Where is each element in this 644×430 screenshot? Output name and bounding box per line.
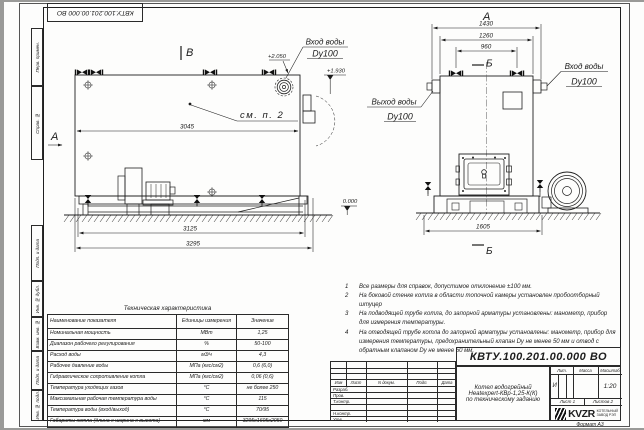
spec-name: Расход воды: [48, 351, 177, 362]
spec-col-units: Единицы измерения: [177, 315, 237, 329]
dim-960: 960: [481, 44, 492, 51]
front-inlet-dn: Dy100: [571, 77, 597, 87]
spec-name: Диапазон рабочего регулирования: [48, 340, 177, 351]
sheet-number: Лист 1: [551, 398, 584, 405]
inspection-plate: [503, 92, 522, 109]
product-description: Котел водогрейный Heatexpert-КВр-1,25-К(…: [456, 366, 550, 421]
lit-label: Лит.: [551, 367, 573, 374]
drain-valve-icon: [425, 182, 431, 194]
section-label-a-side: А: [50, 131, 58, 143]
note-text: На боковой стенке котла в области топочн…: [359, 292, 617, 310]
dim-1260: 1260: [479, 33, 494, 40]
rev-col-data: Дата: [437, 379, 457, 386]
spec-units: °С: [177, 406, 237, 417]
spec-value: 115: [237, 395, 289, 406]
spec-name: Температура воды (вход/выход): [48, 406, 177, 417]
spec-row: Гидравлическое сопротивление котлаМПа (к…: [48, 373, 289, 384]
sign-razrab: Разраб.: [333, 387, 349, 392]
spec-row: Диапазон рабочего регулирования%50-100: [48, 340, 289, 351]
note-number: 2: [345, 292, 359, 310]
spec-units: м3/ч: [177, 351, 237, 362]
sign-prov: Пров.: [333, 393, 344, 398]
inlet-flange-icon: [275, 78, 293, 96]
level-2050: +2.050: [268, 54, 287, 60]
spec-name: Температура уходящих газов: [48, 384, 177, 395]
spec-units: МВт: [177, 329, 237, 340]
valve-icon: [510, 71, 524, 77]
mass-label: Масса: [573, 367, 598, 374]
front-outlet-label: Выход воды: [372, 98, 417, 107]
front-inlet-label: Вход воды: [565, 62, 604, 71]
spec-row: Габариты котла (длина х ширина х высота)…: [48, 417, 289, 428]
side-inlet-label: Вход воды: [306, 38, 345, 47]
drawing-sheet: Перв. примен. Справ. № Подп. и дата Инв.…: [0, 0, 644, 430]
scale-value: 1:20: [598, 374, 622, 398]
drain-valve-icon: [537, 180, 543, 192]
sheets-total: Листов 2: [584, 398, 622, 405]
spec-units: МПа (кгс/см2): [177, 362, 237, 373]
burner-assembly: [118, 168, 175, 215]
spec-value: 0,06 (0,6): [237, 373, 289, 384]
note-item: 1Все размеры для справок, допустимое отк…: [345, 283, 617, 292]
scale-label: Масштаб: [598, 367, 622, 374]
ground-hatch-side: [64, 215, 333, 222]
front-outlet-dn: Dy100: [387, 112, 413, 122]
level-0000: 0.000: [343, 199, 358, 205]
spec-value: не более 250: [237, 384, 289, 395]
spec-value: 70/95: [237, 406, 289, 417]
fan-blower: [542, 172, 588, 213]
front-view-texts: А Б Б 1430 1260 960 1605 Вход воды Dy100…: [372, 11, 604, 257]
spec-table-title: Техническая характеристика: [47, 305, 288, 312]
format-label: Формат А3: [555, 421, 625, 428]
valve-icons-bottom: [85, 195, 265, 207]
section-label-b-bottom: Б: [486, 246, 493, 257]
spec-units: %: [177, 340, 237, 351]
logo-subtext-2: ЗАВОД РЭП: [597, 414, 618, 418]
outlet-flange-left: [427, 80, 440, 93]
spec-value: 4,3: [237, 351, 289, 362]
spec-header-row: Наименование показателя Единицы измерени…: [48, 315, 289, 329]
note-number: 3: [345, 310, 359, 328]
spec-col-value: Значение: [237, 315, 289, 329]
dim-3045: 3045: [180, 124, 195, 131]
lit-mass-scale-block: Лит. Масса Масштаб И 1:20 Лист 1 Листов …: [550, 366, 621, 421]
front-view-dimensions: [367, 24, 608, 245]
note-item: 3На подводящей трубе котла, до запорной …: [345, 310, 617, 328]
section-label-b-top: Б: [486, 59, 493, 70]
side-view-texts: В А см. п. 2 3045 3125 3295 +2.050 +1.93…: [50, 38, 358, 248]
spec-units: °С: [177, 395, 237, 406]
doc-number: КВТУ.100.201.00.000 ВО: [470, 351, 607, 363]
spec-row: Температура уходящих газов°Сне более 250: [48, 384, 289, 395]
notes-list: 1Все размеры для справок, допустимое отк…: [345, 283, 617, 356]
valve-icons-top: [75, 70, 276, 76]
spec-name: Гидравлическое сопротивление котла: [48, 373, 177, 384]
spec-units: мм: [177, 417, 237, 428]
rev-col-podp: Подп.: [407, 379, 437, 386]
spec-row: Номинальная мощностьМВт1,25: [48, 329, 289, 340]
kvzr-logo-text: KVZR: [568, 408, 595, 420]
sign-utv: Утв.: [333, 417, 343, 422]
rev-col-doc: N докум.: [366, 379, 407, 386]
spec-name: Рабочее давление воды: [48, 362, 177, 373]
ground-hatch-front: [416, 213, 601, 220]
spec-row: Максимальная рабочая температура воды°С1…: [48, 395, 289, 406]
spec-value: 1,25: [237, 329, 289, 340]
spec-table: Наименование показателя Единицы измерени…: [47, 314, 289, 428]
valve-icon: [449, 71, 463, 77]
spec-value: 50-100: [237, 340, 289, 351]
note-item: 2На боковой стенке котла в области топоч…: [345, 292, 617, 310]
dim-1605: 1605: [476, 224, 491, 231]
revision-table: Изм Лист N докум. Подп. Дата Разраб. Про…: [330, 361, 456, 421]
note-text: На подводящей трубе котла, до запорной а…: [359, 310, 617, 328]
level-1930: +1.930: [327, 69, 346, 75]
note-number: 1: [345, 283, 359, 292]
side-view: [64, 70, 335, 223]
furnace-door: [456, 154, 512, 195]
doc-number-box: КВТУ.100.201.00.000 ВО: [456, 347, 621, 366]
dim-3295: 3295: [186, 241, 201, 248]
spec-col-name: Наименование показателя: [48, 315, 177, 329]
company-logo-row: KVZR КОТЕЛЬНЫЙ ЗАВОД РЭП: [551, 405, 622, 422]
spec-row: Температура воды (вход/выход)°С70/95: [48, 406, 289, 417]
rev-col-izm: Изм: [331, 379, 346, 386]
spec-row: Рабочее давление водыМПа (кгс/см2)0,6 (6…: [48, 362, 289, 373]
spec-units: МПа (кгс/см2): [177, 373, 237, 384]
dim-3125: 3125: [183, 226, 198, 233]
outlet-pipe-elbow: [303, 95, 335, 146]
see-note-label: см. п. 2: [240, 110, 284, 121]
title-block: КВТУ.100.201.00.000 ВО Изм Лист N докум.…: [330, 347, 621, 421]
lit-value: И: [551, 374, 558, 398]
inlet-flange-right: [533, 80, 547, 93]
rev-col-list: Лист: [346, 379, 366, 386]
side-inlet-dn: Dy100: [312, 49, 338, 59]
spec-name: Номинальная мощность: [48, 329, 177, 340]
sign-nkontr: Н.контр.: [333, 411, 351, 416]
desc-line-3: по техническому заданию: [466, 397, 540, 403]
spec-value: 0,6 (6,0): [237, 362, 289, 373]
section-label-b: В: [186, 47, 193, 59]
kvzr-logo-icon: [555, 408, 566, 420]
note-text: Все размеры для справок, допустимое откл…: [359, 283, 617, 292]
spec-units: °С: [177, 384, 237, 395]
spec-name: Максимальная рабочая температура воды: [48, 395, 177, 406]
sign-tkontr: Т.контр.: [333, 399, 350, 404]
lug-icons: [83, 80, 217, 197]
spec-row: Расход водым3/ч4,3: [48, 351, 289, 362]
spec-name: Габариты котла (длина х ширина х высота): [48, 417, 177, 428]
dim-1430: 1430: [479, 21, 494, 28]
spec-value: 3295х1605х2050: [237, 417, 289, 428]
